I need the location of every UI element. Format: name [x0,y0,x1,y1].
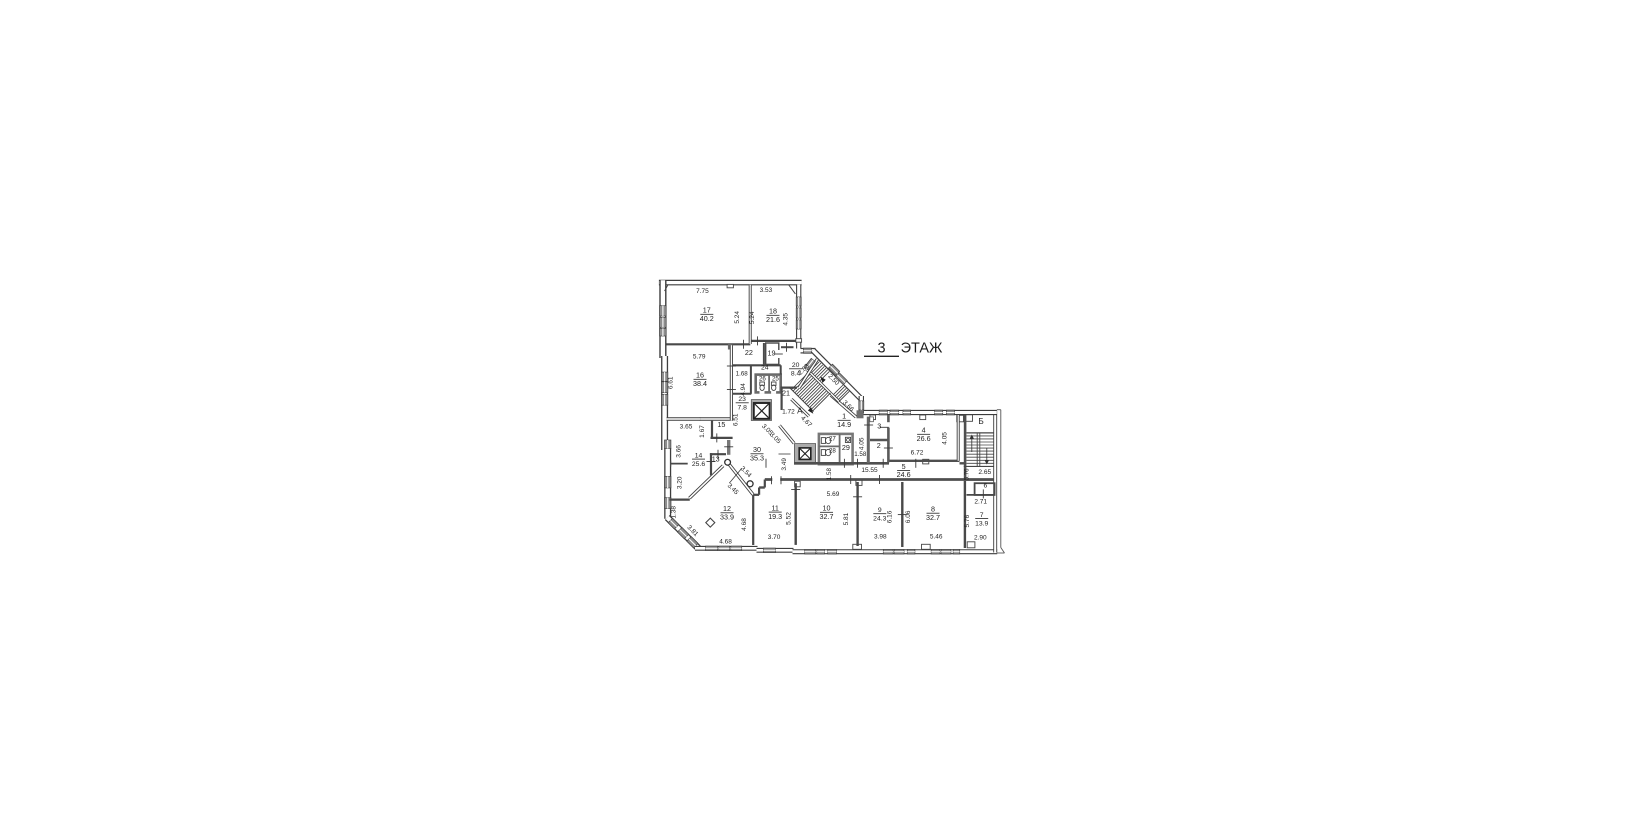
svg-text:4.68: 4.68 [741,518,748,531]
svg-text:21: 21 [782,388,790,397]
svg-text:24.6: 24.6 [897,470,911,479]
svg-text:3: 3 [877,422,881,431]
svg-text:6.16: 6.16 [887,510,894,523]
svg-text:6.51: 6.51 [733,413,740,426]
svg-text:20: 20 [792,362,800,369]
svg-text:23: 23 [738,396,746,403]
svg-text:4.67: 4.67 [799,415,813,429]
svg-text:3.98: 3.98 [874,534,887,541]
svg-text:26: 26 [759,376,766,383]
svg-text:19: 19 [768,348,776,357]
svg-text:3.05: 3.05 [768,431,782,445]
svg-text:Б: Б [978,417,983,426]
svg-text:15.55: 15.55 [861,467,878,474]
svg-text:1.68: 1.68 [736,370,749,377]
svg-text:4.05: 4.05 [942,432,949,445]
svg-text:2.90: 2.90 [974,534,987,541]
svg-text:5.52: 5.52 [785,512,792,525]
svg-text:25: 25 [772,376,779,383]
svg-text:3.20: 3.20 [676,476,683,489]
svg-text:3.70: 3.70 [768,534,781,541]
svg-text:5.81: 5.81 [843,512,850,525]
svg-text:7: 7 [980,512,984,519]
svg-text:4.94: 4.94 [740,383,747,396]
svg-text:4.05: 4.05 [859,437,866,450]
svg-text:6.61: 6.61 [668,376,675,389]
svg-text:9: 9 [878,507,882,514]
svg-text:5.24: 5.24 [734,311,741,324]
svg-text:33.9: 33.9 [720,513,734,522]
svg-text:2: 2 [877,441,881,450]
svg-text:29: 29 [842,443,850,452]
svg-text:15: 15 [717,420,725,429]
svg-text:13.9: 13.9 [975,520,988,527]
svg-text:1.38: 1.38 [671,506,678,519]
svg-text:5.76: 5.76 [965,468,971,480]
svg-text:6: 6 [984,483,988,490]
svg-text:3.65: 3.65 [680,424,693,431]
svg-text:27: 27 [829,436,836,443]
svg-text:28: 28 [829,448,836,455]
svg-text:14: 14 [695,452,703,459]
svg-text:6.72: 6.72 [911,449,924,456]
svg-text:38.4: 38.4 [693,379,707,388]
svg-text:3.53: 3.53 [760,287,773,294]
svg-text:1.58: 1.58 [854,451,867,458]
svg-text:1.72: 1.72 [782,409,795,416]
svg-text:А: А [797,407,803,416]
svg-text:1.67: 1.67 [699,425,706,438]
svg-text:3.66: 3.66 [675,445,682,458]
svg-text:1.58: 1.58 [826,468,833,481]
svg-text:ЭТАЖ: ЭТАЖ [901,341,943,357]
svg-text:25.6: 25.6 [692,461,705,468]
svg-text:5.69: 5.69 [827,491,840,498]
svg-text:32.7: 32.7 [820,512,834,521]
svg-text:2.65: 2.65 [978,469,991,476]
svg-text:40.2: 40.2 [700,314,714,323]
svg-text:3.45: 3.45 [726,482,740,496]
svg-text:3: 3 [877,341,885,357]
svg-text:4.35: 4.35 [783,313,790,326]
svg-text:13: 13 [712,455,720,464]
svg-text:24: 24 [761,364,769,371]
svg-text:7.75: 7.75 [696,288,709,295]
svg-text:22: 22 [745,348,753,357]
svg-text:21.6: 21.6 [766,315,780,324]
svg-text:35.3: 35.3 [750,454,764,463]
svg-text:19.3: 19.3 [768,512,782,521]
svg-text:6.06: 6.06 [905,510,912,523]
svg-text:7.8: 7.8 [737,405,747,412]
svg-text:5.24: 5.24 [749,311,756,324]
svg-text:2.71: 2.71 [974,499,987,506]
svg-text:4.68: 4.68 [719,538,732,545]
svg-text:14.9: 14.9 [837,420,851,429]
svg-text:5.76: 5.76 [964,514,971,527]
svg-text:3.49: 3.49 [781,458,788,471]
svg-text:5.79: 5.79 [693,353,706,360]
svg-text:24.3: 24.3 [873,515,886,522]
svg-text:5.46: 5.46 [930,534,943,541]
svg-text:26.6: 26.6 [917,434,931,443]
svg-text:32.7: 32.7 [926,513,940,522]
